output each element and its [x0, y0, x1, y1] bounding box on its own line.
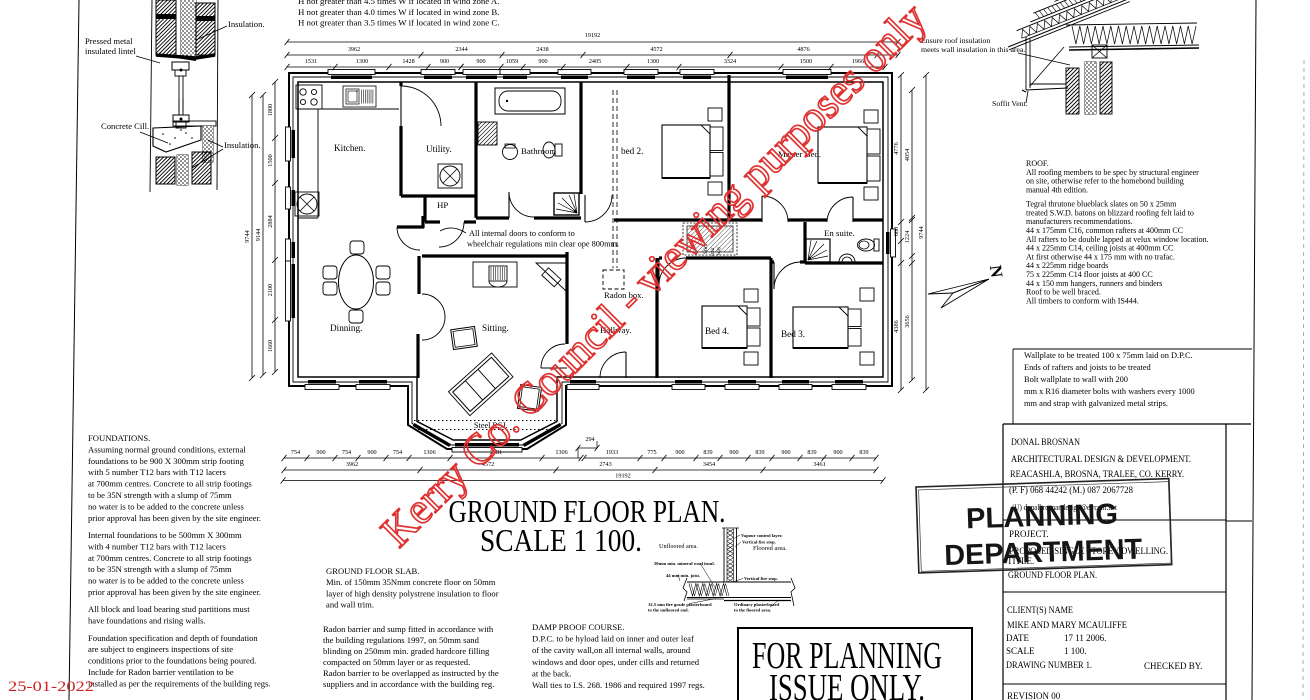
- svg-text:with 4 number T12 bars with T1: with 4 number T12 bars with T12 lacers: [88, 541, 227, 551]
- svg-text:have foundations and rising wa: have foundations and rising walls.: [88, 616, 206, 626]
- svg-text:754: 754: [291, 449, 300, 456]
- svg-text:suppliers and in accordance wi: suppliers and in accordance with the bui…: [323, 679, 494, 689]
- svg-text:ROOF.: ROOF.: [1026, 159, 1049, 168]
- svg-text:Wall ties to I.S. 268. 1986 an: Wall ties to I.S. 268. 1986 and required…: [532, 680, 705, 690]
- svg-text:bed 2.: bed 2.: [621, 146, 643, 156]
- svg-text:9744: 9744: [244, 230, 251, 242]
- svg-text:Bathroom: Bathroom: [521, 146, 556, 156]
- svg-text:4386: 4386: [893, 320, 900, 332]
- svg-text:Dinning.: Dinning.: [330, 323, 362, 333]
- svg-text:4776: 4776: [893, 142, 900, 154]
- svg-text:754: 754: [342, 449, 351, 456]
- svg-text:1531: 1531: [305, 58, 317, 65]
- svg-text:3454: 3454: [703, 461, 715, 468]
- svg-text:Floored area.: Floored area.: [753, 545, 787, 552]
- svg-text:meets wall insulation in this: meets wall insulation in this area.: [921, 45, 1025, 54]
- svg-text:DATE: DATE: [1006, 633, 1029, 643]
- svg-text:900: 900: [440, 58, 449, 65]
- svg-text:DONAL BROSNAN: DONAL BROSNAN: [1011, 438, 1080, 448]
- svg-text:900: 900: [781, 449, 790, 456]
- svg-text:1059: 1059: [506, 58, 518, 65]
- svg-text:All rafters to be double lappe: All rafters to be double lapped at velux…: [1026, 235, 1209, 244]
- svg-text:1300: 1300: [356, 58, 368, 65]
- svg-text:Concrete Cill.: Concrete Cill.: [101, 121, 149, 131]
- svg-text:to the unfloored end.: to the unfloored end.: [648, 608, 689, 613]
- svg-text:way: way: [717, 246, 722, 255]
- svg-text:Insulation.: Insulation.: [228, 19, 265, 29]
- svg-text:44 x 150 mm hangers, runners a: 44 x 150 mm hangers, runners and binders: [1026, 279, 1162, 288]
- svg-text:294: 294: [585, 436, 594, 443]
- svg-text:75 x 225mm C14 floor joists at: 75 x 225mm C14 floor joists at 400 CC: [1026, 270, 1153, 279]
- svg-text:the building regulations 1997,: the building regulations 1997, on 50mm s…: [323, 635, 480, 645]
- svg-text:2100: 2100: [267, 284, 274, 296]
- svg-text:on site, otherwise refer to th: on site, otherwise refer to the homebond…: [1026, 177, 1184, 186]
- svg-text:900: 900: [675, 449, 684, 456]
- svg-text:Roof to be well braced.: Roof to be well braced.: [1026, 288, 1101, 297]
- svg-text:Ordinary plasterboard: Ordinary plasterboard: [734, 602, 779, 607]
- svg-text:Internal foundations to be 500: Internal foundations to be 500mm X 300mm: [88, 530, 242, 540]
- svg-text:Vertical fire stop.: Vertical fire stop.: [744, 576, 778, 581]
- svg-text:Bed 4.: Bed 4.: [705, 326, 729, 336]
- svg-text:Insulation.: Insulation.: [224, 140, 261, 150]
- svg-text:900: 900: [367, 449, 376, 456]
- svg-text:17 11 2006.: 17 11 2006.: [1064, 633, 1106, 643]
- svg-text:900: 900: [538, 58, 547, 65]
- svg-text:775: 775: [647, 449, 656, 456]
- svg-text:ISSUE ONLY.: ISSUE ONLY.: [769, 667, 925, 700]
- svg-text:Sitting.: Sitting.: [482, 323, 509, 333]
- svg-text:900: 900: [476, 58, 485, 65]
- svg-text:1428: 1428: [402, 58, 414, 65]
- svg-text:layer of high density polystre: layer of high density polystrene insulat…: [326, 588, 499, 598]
- svg-text:4054: 4054: [904, 149, 911, 161]
- svg-text:are subject to engineers inspe: are subject to engineers inspections of …: [88, 644, 233, 654]
- svg-text:900: 900: [833, 449, 842, 456]
- svg-text:1306: 1306: [555, 449, 567, 456]
- svg-text:H not greater than 4.5 times W: H not greater than 4.5 times W if locate…: [298, 0, 499, 6]
- svg-text:installed as per the requireme: installed as per the requirements of the…: [88, 678, 271, 688]
- svg-text:H not greater than 3.5 times W: H not greater than 3.5 times W if locate…: [298, 18, 499, 28]
- svg-text:En suite.: En suite.: [824, 228, 855, 238]
- svg-text:All timbers to conform with IS: All timbers to conform with IS444.: [1026, 296, 1139, 305]
- svg-text:839: 839: [807, 449, 816, 456]
- svg-text:1933: 1933: [606, 449, 618, 456]
- svg-text:Wallplate to be treated 100 x: Wallplate to be treated 100 x 75mm laid …: [1024, 351, 1193, 360]
- svg-text:foundations to be 900 X 300mm: foundations to be 900 X 300mm strip foot…: [88, 456, 245, 466]
- svg-text:4572: 4572: [650, 46, 662, 53]
- svg-text:Min. of 150mm 35Nmm concrete f: Min. of 150mm 35Nmm concrete floor on 50…: [326, 577, 496, 587]
- svg-text:1224: 1224: [904, 231, 911, 243]
- svg-text:GROUND FLOOR SLAB.: GROUND FLOOR SLAB.: [326, 566, 419, 576]
- svg-text:50mm min. mineral wool insul.: 50mm min. mineral wool insul.: [654, 561, 715, 566]
- svg-text:Vertical fire stop.: Vertical fire stop.: [742, 540, 776, 545]
- svg-text:1306: 1306: [423, 449, 435, 456]
- svg-text:3962: 3962: [346, 461, 358, 468]
- svg-text:mm and strap with galvanized m: mm and strap with galvanized metal strip…: [1024, 399, 1168, 408]
- svg-text:2438: 2438: [536, 46, 548, 53]
- svg-text:Foundation specification and d: Foundation specification and depth of fo…: [88, 633, 258, 643]
- svg-text:Vapour control layer.: Vapour control layer.: [741, 533, 782, 538]
- svg-text:no water is to be added to the: no water is to be added to the concrete …: [88, 501, 244, 511]
- svg-text:wheelchair regulations min cle: wheelchair regulations min clear ope 800…: [467, 240, 619, 249]
- svg-text:839: 839: [859, 449, 868, 456]
- svg-text:Kerry Co. Council - viewing pu: Kerry Co. Council - viewing purposes onl…: [371, 0, 935, 556]
- svg-text:blinding on 250mm min. graded: blinding on 250mm min. graded hardcore f…: [323, 646, 490, 656]
- svg-text:at 700mm centres. Concrete to: at 700mm centres. Concrete to all strip …: [88, 479, 252, 489]
- svg-text:3656: 3656: [904, 315, 911, 327]
- svg-text:with 5 number T12 bars with T1: with 5 number T12 bars with T12 lacers: [88, 467, 227, 477]
- svg-text:2884: 2884: [267, 215, 274, 227]
- svg-text:and wall trim.: and wall trim.: [326, 600, 374, 610]
- svg-text:to be 35N strength with a slum: to be 35N strength with a slump of 75mm: [88, 564, 232, 574]
- svg-text:Kitchen.: Kitchen.: [334, 143, 365, 153]
- svg-text:DAMP PROOF COURSE.: DAMP PROOF COURSE.: [532, 622, 625, 632]
- svg-text:to the floored area.: to the floored area.: [734, 608, 771, 613]
- svg-text:Radon barrier and sump fitted: Radon barrier and sump fitted in accorda…: [323, 624, 494, 634]
- svg-text:treated S.W.D. batons on blizz: treated S.W.D. batons on blizzard roofin…: [1026, 208, 1194, 217]
- svg-text:prior approval has been given: prior approval has been given by the sit…: [88, 513, 261, 523]
- svg-text:3962: 3962: [348, 46, 360, 53]
- svg-text:at 700mm centres. Concrete to: at 700mm centres. Concrete to all strip …: [88, 553, 252, 563]
- svg-text:D.P.C. to be hyload laid on in: D.P.C. to be hyload laid on inner and ou…: [532, 634, 694, 644]
- svg-text:Unfloored area.: Unfloored area.: [659, 543, 698, 550]
- svg-text:2405: 2405: [589, 58, 601, 65]
- svg-text:PLANNING: PLANNING: [966, 498, 1119, 535]
- svg-text:SCALE: SCALE: [1006, 646, 1035, 656]
- svg-text:4876: 4876: [797, 46, 809, 53]
- svg-text:Soffit Vent.: Soffit Vent.: [992, 99, 1028, 108]
- svg-text:12.5 mm fire grade plasterboar: 12.5 mm fire grade plasterboard: [648, 602, 712, 607]
- svg-text:All roofing members to be spec: All roofing members to be spec by struct…: [1026, 168, 1199, 177]
- svg-text:900: 900: [729, 449, 738, 456]
- svg-text:44 x 225mm C14, ceiling joists: 44 x 225mm C14, ceiling joists at 400mm …: [1026, 244, 1173, 253]
- svg-text:manufacturers recommendations.: manufacturers recommendations.: [1026, 217, 1133, 226]
- svg-text:insulated lintel: insulated lintel: [85, 46, 136, 56]
- svg-text:no water is to be added to the: no water is to be added to the concrete …: [88, 576, 244, 586]
- svg-text:DEPARTMENT: DEPARTMENT: [944, 534, 1143, 573]
- svg-text:44 mm min. joist.: 44 mm min. joist.: [666, 573, 700, 578]
- svg-text:at the back.: at the back.: [532, 668, 571, 678]
- svg-text:manual 4th edition.: manual 4th edition.: [1026, 185, 1088, 194]
- svg-text:CHECKED BY.: CHECKED BY.: [1144, 661, 1202, 671]
- svg-text:1500: 1500: [267, 154, 274, 166]
- svg-text:N: N: [986, 264, 1007, 280]
- svg-text:19192: 19192: [615, 473, 630, 480]
- svg-text:SCALE 1 100.: SCALE 1 100.: [480, 522, 642, 558]
- svg-text:1800: 1800: [267, 104, 274, 116]
- svg-text:CLIENT(S) NAME: CLIENT(S) NAME: [1007, 605, 1073, 615]
- svg-text:44 x 225mm ridge boards: 44 x 225mm ridge boards: [1026, 261, 1108, 270]
- svg-text:839: 839: [703, 449, 712, 456]
- svg-text:All block and load bearing stu: All block and load bearing stud partitio…: [88, 604, 250, 614]
- svg-text:2344: 2344: [455, 46, 467, 53]
- svg-text:19192: 19192: [585, 32, 600, 39]
- svg-text:(P. F) 068 44242 (M.) 087 2067: (P. F) 068 44242 (M.) 087 2067728: [1009, 485, 1133, 496]
- svg-text:754: 754: [393, 449, 402, 456]
- svg-text:Radon barrier to be overlapped: Radon barrier to be overlapped as instru…: [323, 668, 499, 678]
- svg-text:Assuming normal ground conditi: Assuming normal ground conditions, exter…: [88, 444, 246, 454]
- svg-text:44 x 175mm C16, common rafters: 44 x 175mm C16, common rafters at 400mm …: [1026, 226, 1183, 235]
- svg-text:to be 35N strength with a slum: to be 35N strength with a slump of 75mm: [88, 490, 232, 500]
- svg-text:conditions prior to the founda: conditions prior to the foundations bein…: [88, 656, 256, 666]
- svg-text:FOUNDATIONS.: FOUNDATIONS.: [88, 433, 150, 443]
- svg-text:All internal doors to conform: All internal doors to conform to: [469, 229, 575, 238]
- svg-text:REVISION 00: REVISION 00: [1007, 691, 1061, 700]
- svg-text:839: 839: [755, 449, 764, 456]
- svg-text:Utility.: Utility.: [426, 144, 452, 154]
- svg-text:H not greater than 4.0 times W: H not greater than 4.0 times W if locate…: [298, 7, 499, 17]
- svg-text:600: 600: [893, 227, 900, 236]
- svg-text:1660: 1660: [267, 340, 274, 352]
- svg-text:At first otherwise 44 x 175 mm: At first otherwise 44 x 175 mm with no t…: [1026, 252, 1175, 261]
- svg-text:1300: 1300: [647, 58, 659, 65]
- svg-text:windows and door opes, under c: windows and door opes, under cills and r…: [532, 657, 700, 667]
- svg-text:prior approval has been given: prior approval has been given by the sit…: [88, 587, 261, 597]
- svg-text:Ends of rafters and joists to: Ends of rafters and joists to be treated: [1024, 363, 1152, 372]
- svg-text:9144: 9144: [255, 229, 262, 241]
- svg-text:3324: 3324: [724, 58, 736, 65]
- svg-text:1 100.: 1 100.: [1064, 646, 1087, 656]
- svg-text:25-01-2022: 25-01-2022: [8, 679, 94, 695]
- svg-text:Ensure roof insulation: Ensure roof insulation: [921, 36, 990, 45]
- svg-text:1500: 1500: [800, 58, 812, 65]
- svg-text:of the cavity wall,on all inte: of the cavity wall,on all internal walls…: [532, 645, 691, 655]
- svg-text:ARCHITECTURAL DESIGN & DEVELOP: ARCHITECTURAL DESIGN & DEVELOPMENT.: [1011, 455, 1191, 465]
- svg-text:Pressed metal: Pressed metal: [85, 36, 133, 46]
- svg-text:3461: 3461: [813, 461, 825, 468]
- svg-text:Bolt wallplate to wall with 20: Bolt wallplate to wall with 200: [1024, 375, 1128, 384]
- svg-text:mm x R16 diameter bolts with w: mm x R16 diameter bolts with washers eve…: [1024, 387, 1195, 396]
- svg-text:2743: 2743: [599, 461, 611, 468]
- svg-text:compacted on 50mm layer or as: compacted on 50mm layer or as requested.: [323, 657, 470, 667]
- svg-text:Tegral thrutone blueblack slat: Tegral thrutone blueblack slates on 50 x…: [1026, 200, 1177, 209]
- svg-text:Include for Radon barrier vent: Include for Radon barrier ventilation to…: [88, 667, 234, 677]
- svg-text:HP: HP: [437, 200, 448, 210]
- svg-text:DRAWING NUMBER 1.: DRAWING NUMBER 1.: [1006, 660, 1092, 670]
- svg-text:GROUND FLOOR PLAN.: GROUND FLOOR PLAN.: [1008, 570, 1097, 580]
- svg-text:900: 900: [316, 449, 325, 456]
- svg-text:9744: 9744: [918, 226, 925, 238]
- svg-text:MIKE AND MARY MCAULIFFE: MIKE AND MARY MCAULIFFE: [1007, 620, 1127, 630]
